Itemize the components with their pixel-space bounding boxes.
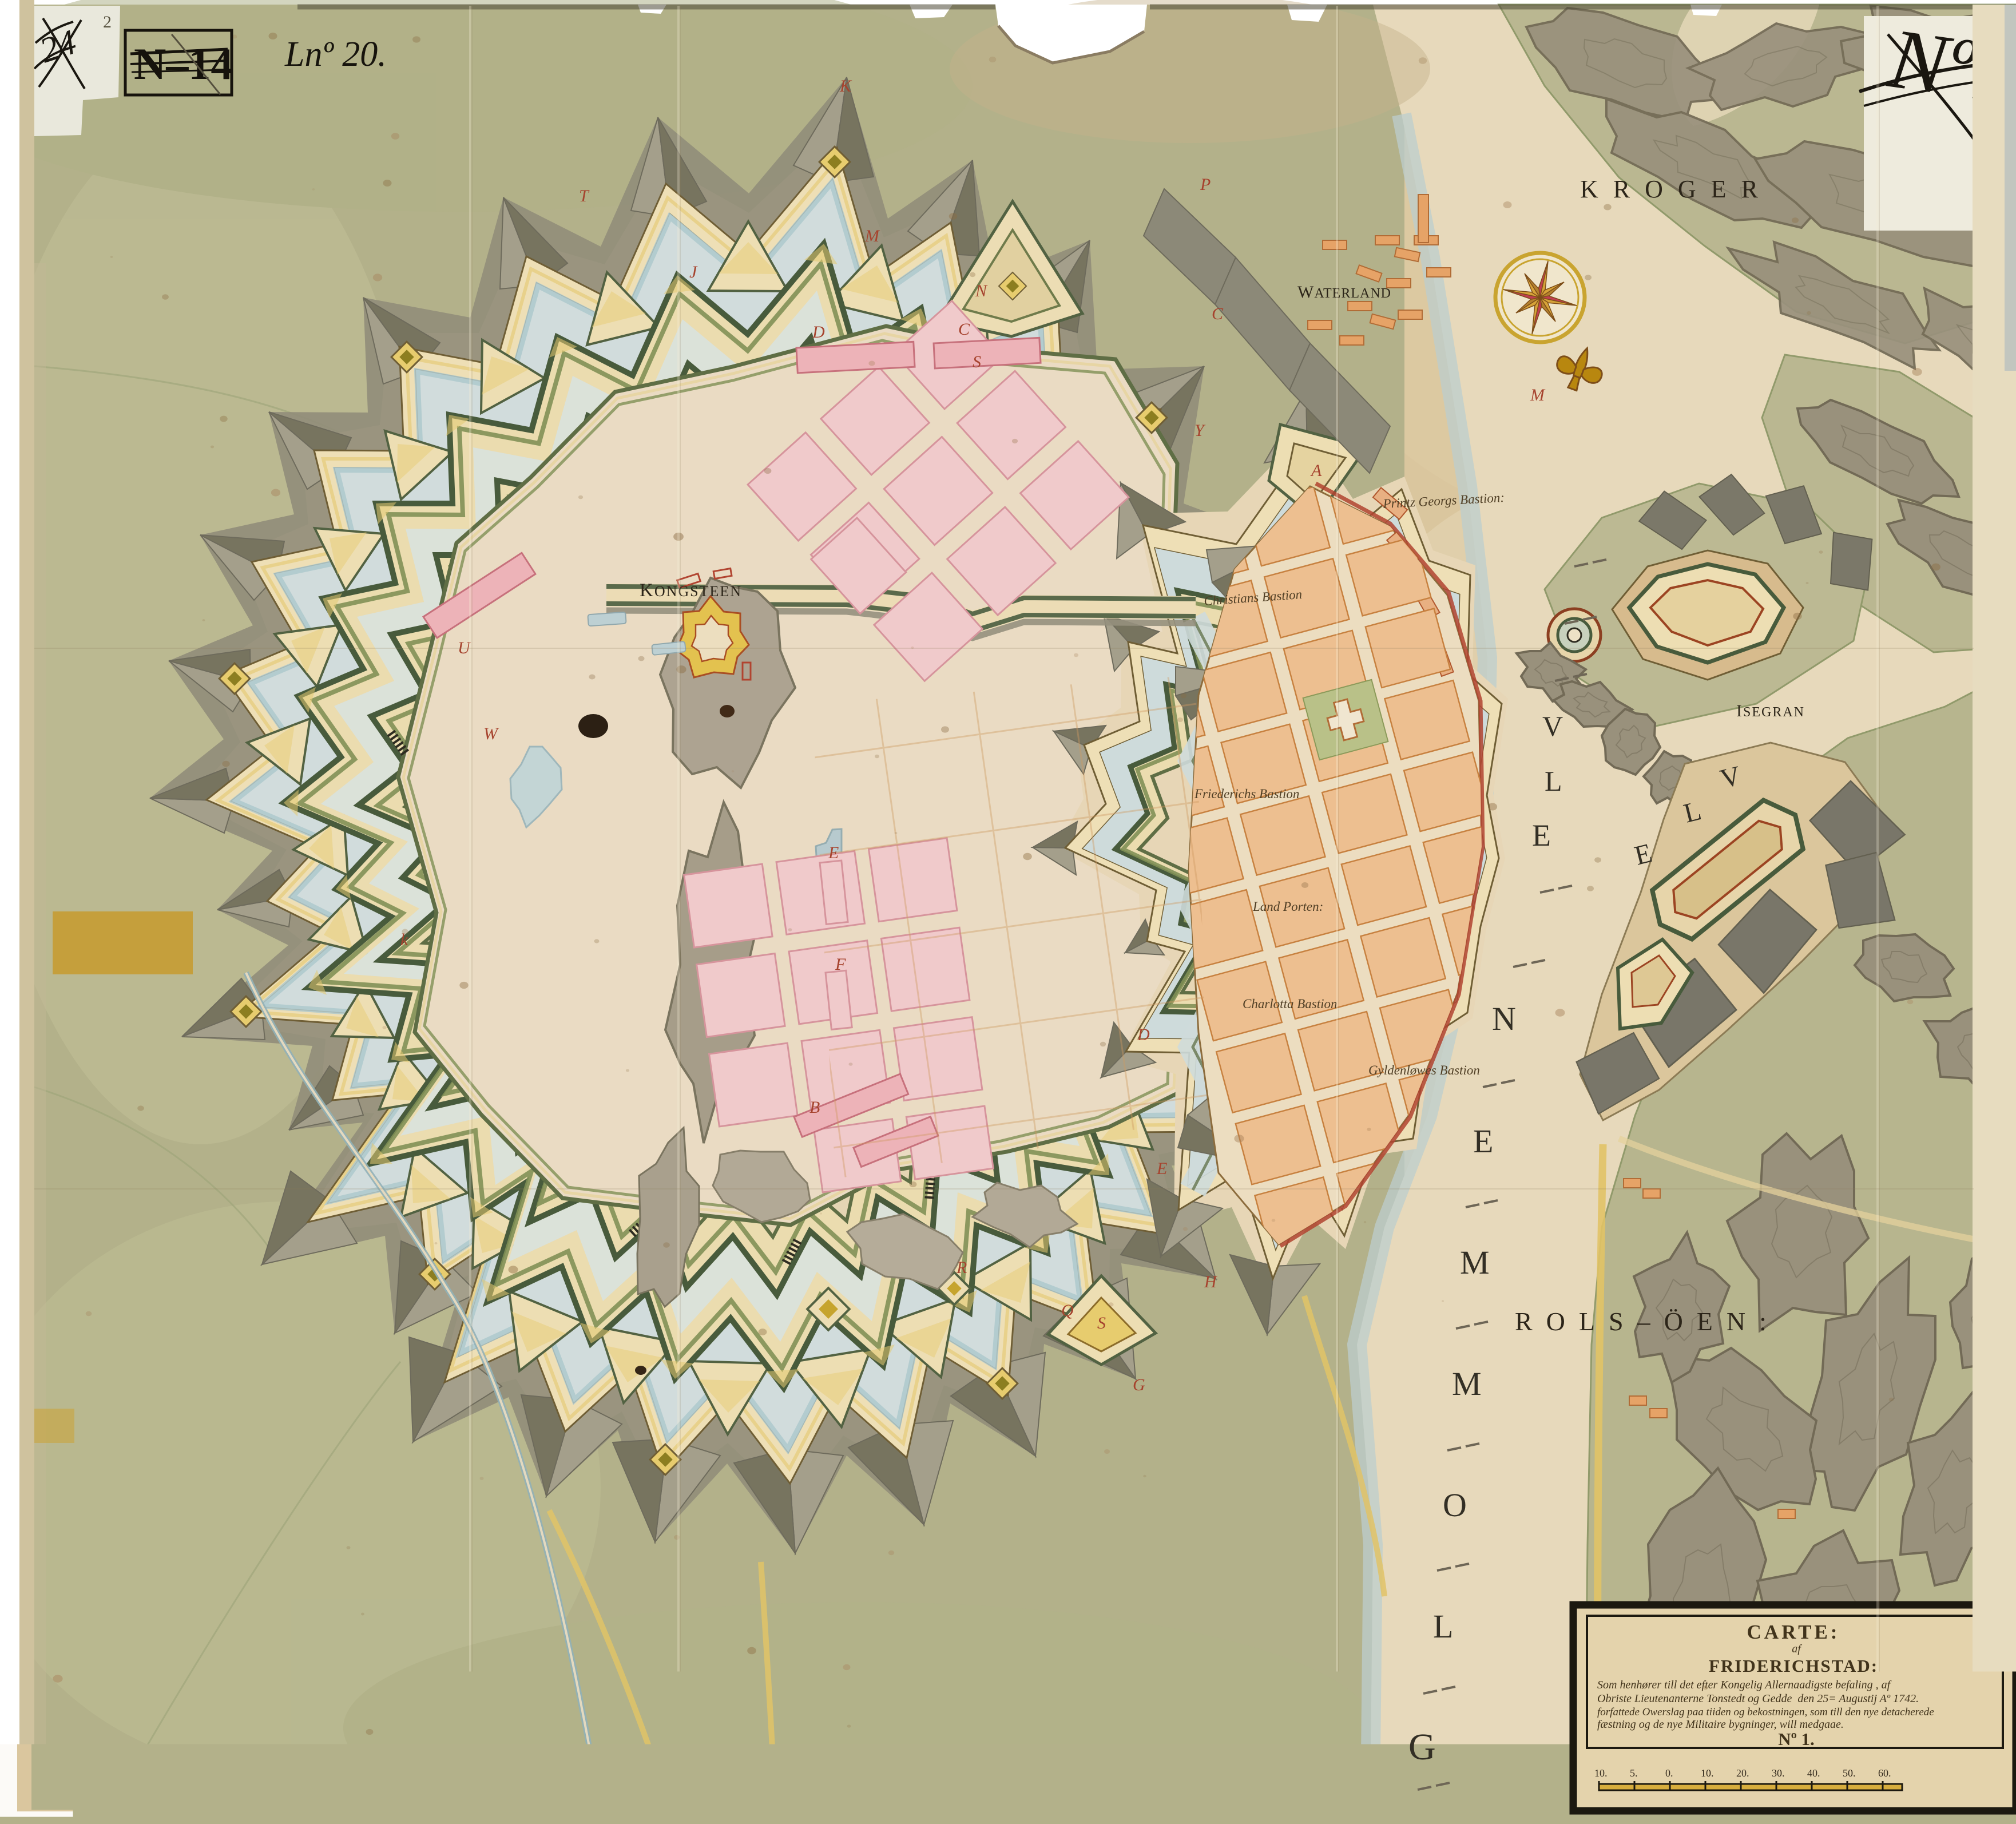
svg-text:Lnº 20.: Lnº 20.	[284, 35, 387, 74]
svg-text:2: 2	[103, 13, 112, 31]
